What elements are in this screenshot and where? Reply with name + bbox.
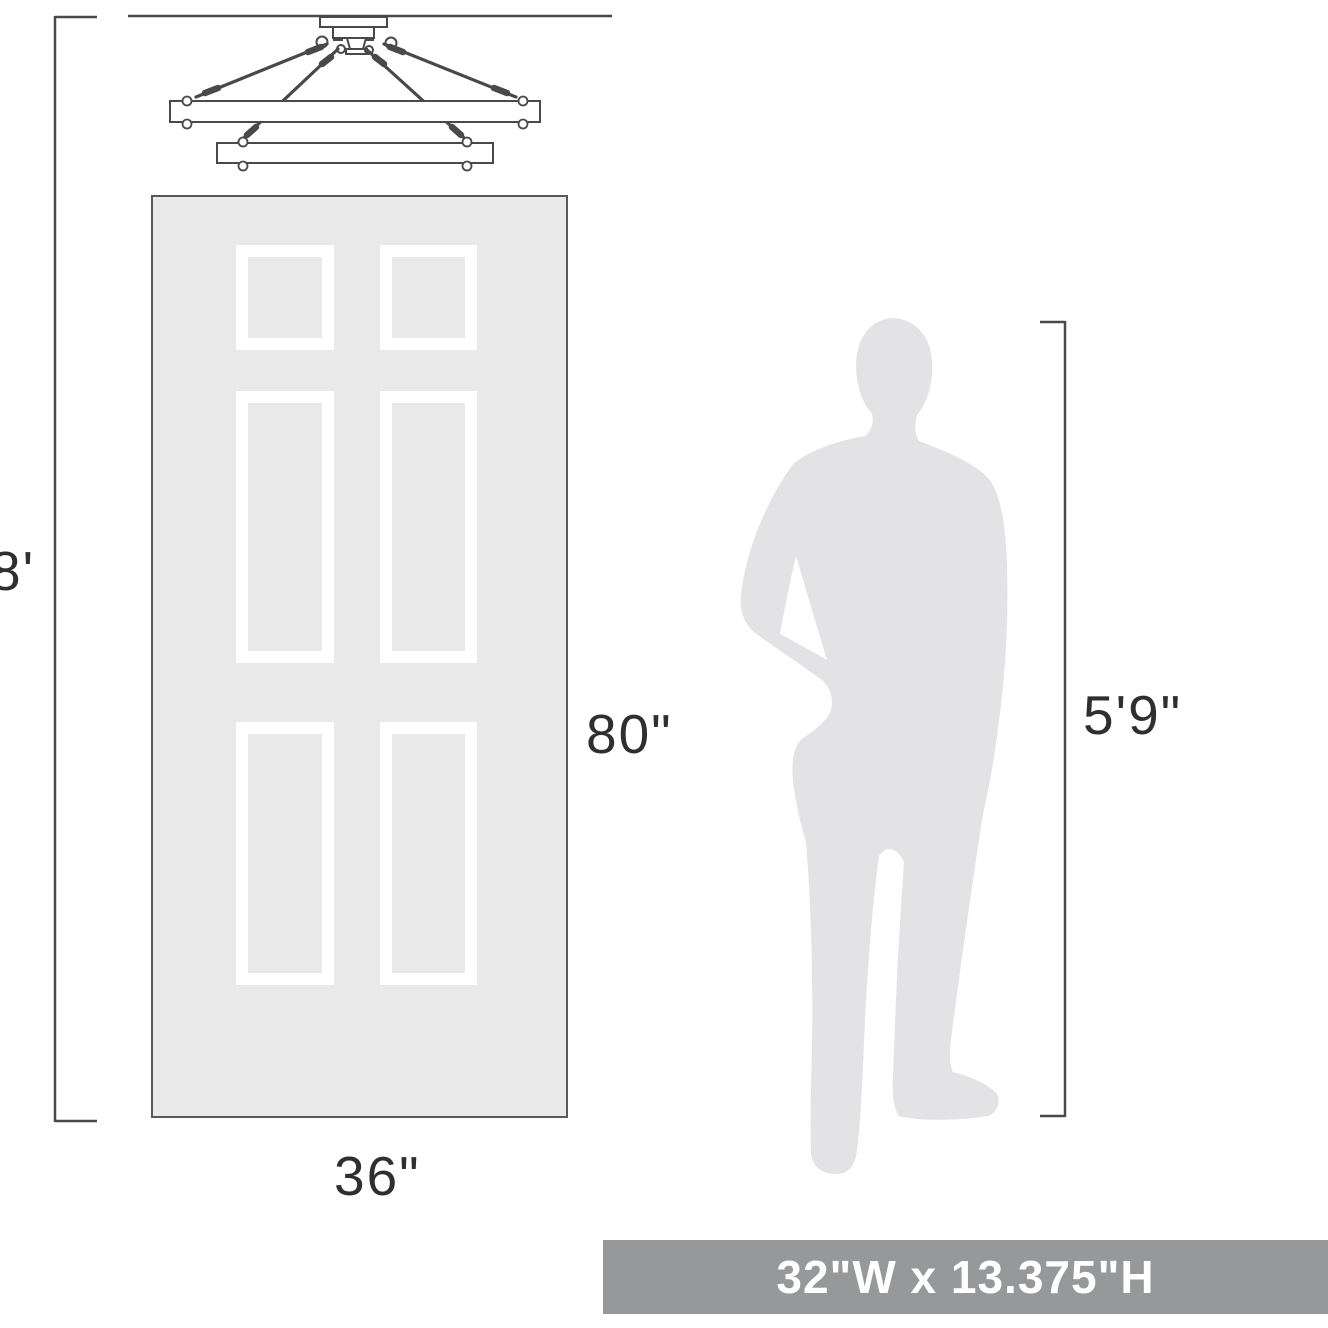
- person-height-dimension-line: [1040, 321, 1065, 1117]
- door-panel: [236, 245, 334, 350]
- chandelier-drawing: [170, 17, 540, 171]
- door-panel: [380, 245, 477, 350]
- door-panel-inset: [392, 734, 465, 973]
- door-panel-inset: [248, 734, 322, 973]
- door-panel: [236, 722, 334, 985]
- product-size-diagram: 8' 80" 36" 5'9" 32"W x 13.375"H: [0, 0, 1328, 1328]
- door-panel-inset: [248, 257, 322, 338]
- chandelier-frames: [170, 101, 540, 163]
- ceiling-height-dimension-line: [55, 16, 97, 1122]
- door-panel: [236, 391, 334, 663]
- person-height-label: 5'9": [1083, 685, 1182, 746]
- fixture-dimensions-text: 32"W x 13.375"H: [776, 1250, 1154, 1304]
- chandelier-canopy: [317, 17, 397, 54]
- door-illustration: [151, 195, 568, 1118]
- chandelier-rods: [196, 44, 516, 146]
- door-panel-inset: [392, 257, 465, 338]
- ceiling-height-label: 8': [0, 541, 35, 602]
- person-silhouette: [741, 318, 1008, 1174]
- door-panel: [380, 722, 477, 985]
- door-width-label: 36": [334, 1146, 421, 1207]
- door-panel: [380, 391, 477, 663]
- door-height-label: 80": [586, 704, 673, 765]
- fixture-dimensions-banner: 32"W x 13.375"H: [603, 1240, 1328, 1314]
- door-panel-inset: [392, 403, 465, 651]
- door-panel-inset: [248, 403, 322, 651]
